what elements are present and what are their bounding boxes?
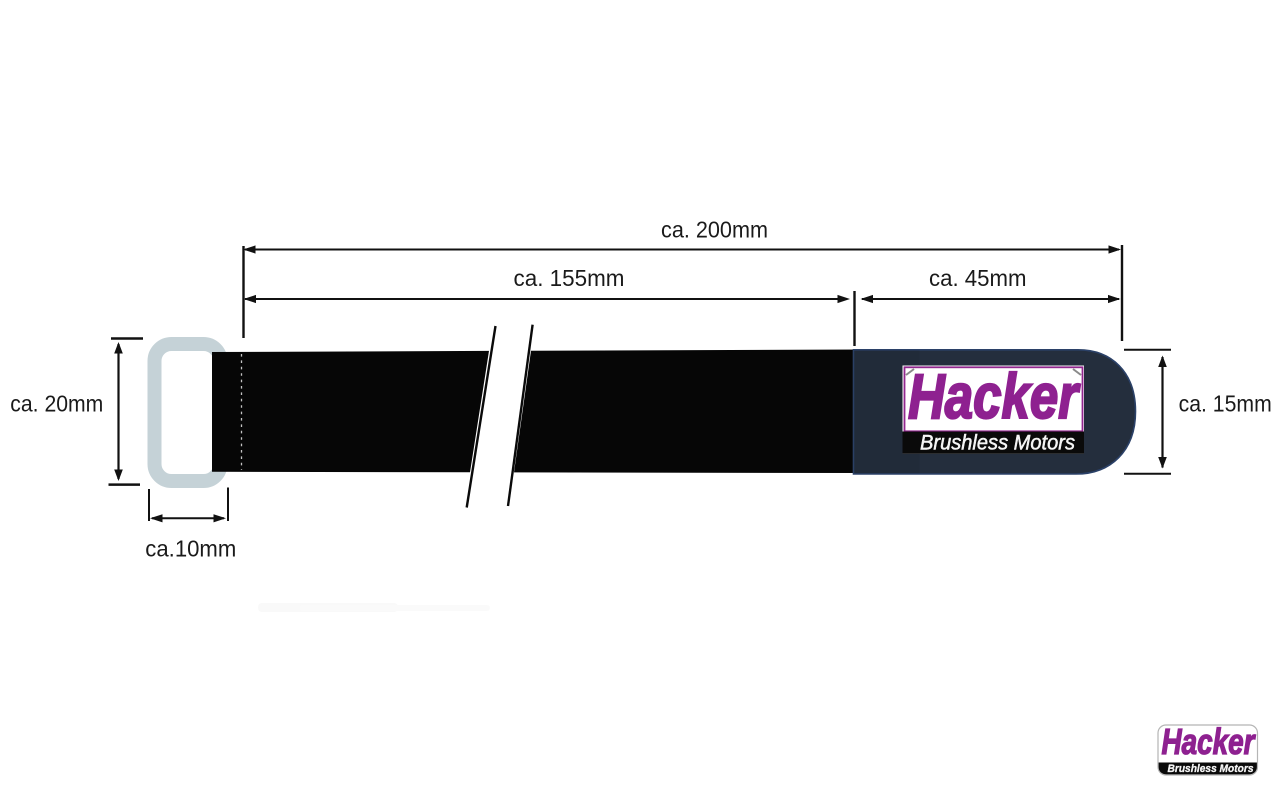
svg-text:ca. 15mm: ca. 15mm xyxy=(1179,390,1272,416)
svg-text:Hacker: Hacker xyxy=(1162,721,1257,762)
svg-text:ca. 45mm: ca. 45mm xyxy=(929,265,1027,291)
svg-text:ca. 20mm: ca. 20mm xyxy=(10,390,103,416)
svg-text:ca.10mm: ca.10mm xyxy=(145,536,236,562)
svg-text:ca. 155mm: ca. 155mm xyxy=(514,265,625,291)
svg-text:Brushless Motors: Brushless Motors xyxy=(1168,763,1254,775)
svg-text:Hacker: Hacker xyxy=(908,362,1081,432)
svg-text:ca. 200mm: ca. 200mm xyxy=(661,217,768,243)
svg-text:Brushless Motors: Brushless Motors xyxy=(920,432,1075,455)
